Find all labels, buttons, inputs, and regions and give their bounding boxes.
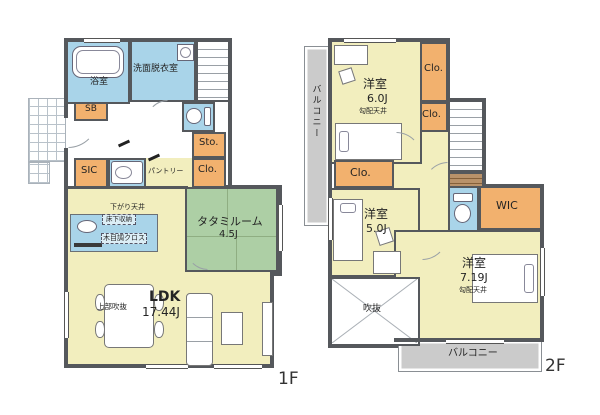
label-バルコニー: バルコニー xyxy=(310,84,319,139)
dining-chair xyxy=(154,321,164,338)
wall xyxy=(64,186,188,189)
winH xyxy=(446,339,504,344)
label-洗面脱衣室: 洗面脱衣室 xyxy=(133,65,178,74)
bed-6 xyxy=(335,123,402,160)
wall xyxy=(226,185,282,189)
label-Clo.: Clo. xyxy=(422,110,441,121)
winH xyxy=(84,38,120,43)
toilet-1f-fixture xyxy=(186,107,211,126)
label-上部吹抜: 上部吹抜 xyxy=(97,303,127,311)
label-7.19J: 7.19J xyxy=(460,272,488,284)
desk-5 xyxy=(373,251,401,274)
bed-5 xyxy=(333,199,363,261)
wall xyxy=(228,38,232,188)
sofa xyxy=(186,293,213,366)
label-Sto.: Sto. xyxy=(199,138,218,149)
label-WIC: WIC xyxy=(496,200,518,212)
winV xyxy=(278,205,283,251)
entrance-porch xyxy=(28,98,66,162)
bathtub xyxy=(72,46,124,78)
floor-label-2f: 2F xyxy=(545,356,566,376)
label-6.0J: 6.0J xyxy=(367,93,388,105)
wall xyxy=(328,38,332,348)
label-洋室: 洋室 xyxy=(364,208,388,221)
label-バルコニー: バルコニー xyxy=(448,349,498,360)
label-木目調クロス: 木目調クロス xyxy=(101,233,147,244)
toilet-2f-fixture xyxy=(453,193,473,223)
tv-board xyxy=(262,302,273,356)
floor-plan-canvas: 1F 2F 浴室洗面脱衣室SBSto.Clo.SICパントリー下がり天井床下収納… xyxy=(0,0,600,415)
wall xyxy=(64,38,68,118)
wall xyxy=(328,344,398,348)
label-SB: SB xyxy=(85,105,97,114)
label-Clo.: Clo. xyxy=(424,64,443,75)
label-洋室: 洋室 xyxy=(363,78,387,91)
label-洋室: 洋室 xyxy=(462,257,486,270)
stove xyxy=(74,243,102,247)
washing-machine xyxy=(177,44,194,61)
label-床下収納: 床下収納 xyxy=(102,214,136,225)
winV xyxy=(64,292,69,338)
coffee-table xyxy=(221,312,243,345)
winH xyxy=(344,38,396,43)
powder-fixture xyxy=(111,161,143,184)
label-Clo.: Clo. xyxy=(350,167,371,179)
label-吹抜: 吹抜 xyxy=(363,305,381,314)
label-浴室: 浴室 xyxy=(90,78,108,87)
label-Clo.: Clo. xyxy=(198,165,217,176)
label-タタミルーム: タタミルーム xyxy=(197,216,263,228)
label-SIC: SIC xyxy=(81,166,97,177)
wall xyxy=(446,98,486,102)
wall xyxy=(482,184,544,188)
dining-chair xyxy=(95,321,105,338)
label-パントリー: パントリー xyxy=(148,168,183,175)
label-5.0J: 5.0J xyxy=(366,223,387,235)
stairs-2f xyxy=(448,100,484,172)
winH xyxy=(214,364,262,369)
stairs-1f xyxy=(196,40,230,102)
label-17.44J: 17.44J xyxy=(142,306,180,319)
label-勾配天井: 勾配天井 xyxy=(459,287,487,294)
label-LDK: LDK xyxy=(149,290,180,305)
desk-6 xyxy=(334,45,368,65)
winV xyxy=(540,248,545,296)
wall xyxy=(446,38,450,102)
kitchen-sink xyxy=(77,220,97,233)
label-勾配天井: 勾配天井 xyxy=(359,108,387,115)
wall xyxy=(482,98,486,188)
floor-label-1f: 1F xyxy=(278,369,299,389)
winH xyxy=(146,364,188,369)
porch-step xyxy=(28,162,50,184)
label-下がり天井: 下がり天井 xyxy=(110,204,145,211)
label-4.5J: 4.5J xyxy=(219,230,238,241)
